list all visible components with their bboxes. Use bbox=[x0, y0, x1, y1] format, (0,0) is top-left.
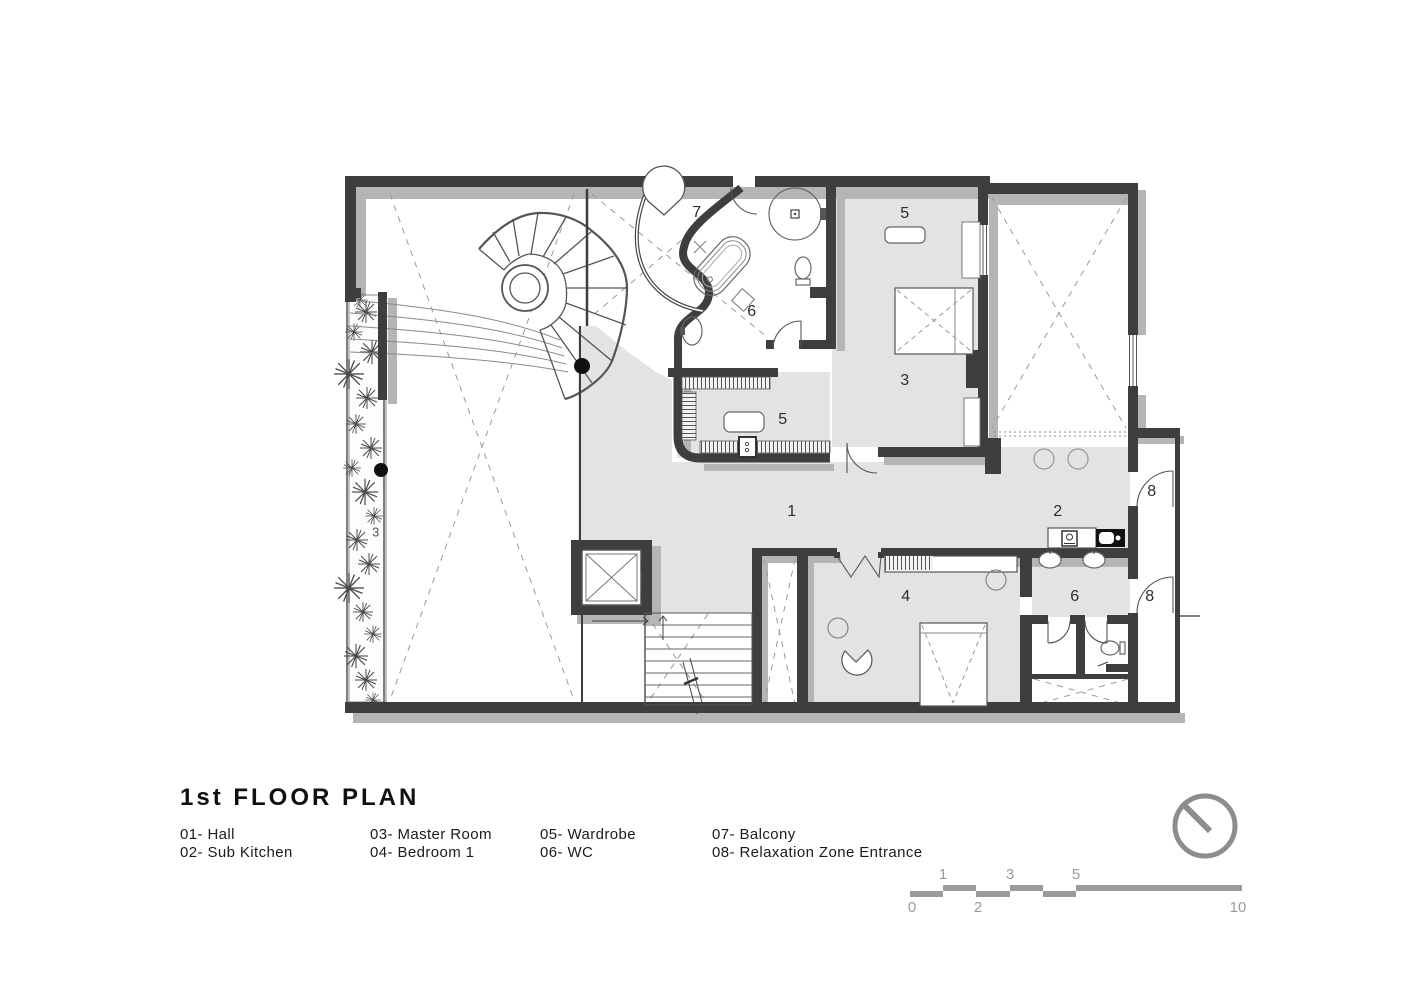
floor-plan-sheet: 7 5 6 3 5 1 2 8 4 6 8 3 1st FLOOR PLAN 0… bbox=[0, 0, 1415, 1000]
page-title: 1st FLOOR PLAN bbox=[180, 784, 419, 812]
balcony-chair-icon bbox=[643, 166, 685, 215]
room-label-entrance-b: 8 bbox=[1145, 588, 1154, 606]
basin-icon bbox=[1039, 552, 1061, 568]
scale-tick-label: 10 bbox=[1230, 899, 1247, 916]
master-cabinet-2 bbox=[964, 398, 980, 446]
room-label-master: 3 bbox=[900, 372, 909, 390]
scale-tick-label: 1 bbox=[939, 866, 947, 883]
scale-tick-label: 0 bbox=[908, 899, 916, 916]
legend-item: 01- Hall bbox=[180, 826, 235, 843]
wardrobe-island bbox=[724, 412, 764, 432]
floor-areas bbox=[578, 188, 1130, 707]
column-dot bbox=[374, 463, 388, 477]
stove-icon bbox=[1062, 531, 1077, 546]
scale-tick-label: 3 bbox=[1006, 866, 1014, 883]
room-label-wc-bottom: 6 bbox=[1070, 588, 1079, 606]
room-label-hall: 1 bbox=[787, 503, 796, 521]
spiral-stair bbox=[479, 213, 627, 399]
master-wardrobe-island bbox=[885, 227, 925, 243]
dotted-opening-lines bbox=[994, 432, 1126, 436]
toilet-top-icon bbox=[795, 257, 811, 285]
bedroom-bed bbox=[920, 623, 987, 706]
straight-stair bbox=[592, 613, 752, 714]
room-label-kitchen: 2 bbox=[1053, 503, 1062, 521]
north-indicator-icon bbox=[1175, 796, 1235, 856]
legend-item: 02- Sub Kitchen bbox=[180, 844, 293, 861]
scale-tick-label: 2 bbox=[974, 899, 982, 916]
bathtub-icon bbox=[687, 230, 756, 302]
room-label-wardrobe-top: 5 bbox=[900, 205, 909, 223]
legend-item: 06- WC bbox=[540, 844, 593, 861]
column-dot bbox=[574, 358, 590, 374]
legend-item: 07- Balcony bbox=[712, 826, 796, 843]
scale-tick-label: 5 bbox=[1072, 866, 1080, 883]
legend-item: 05- Wardrobe bbox=[540, 826, 636, 843]
windows bbox=[980, 225, 1139, 386]
sink-icon bbox=[1096, 529, 1125, 547]
room-label-wardrobe: 5 bbox=[778, 411, 787, 429]
master-cabinet bbox=[962, 222, 980, 278]
room-label-bedroom: 4 bbox=[901, 588, 910, 606]
basin-icon bbox=[1083, 552, 1105, 568]
legend-item: 03- Master Room bbox=[370, 826, 492, 843]
bathroom-top bbox=[680, 188, 826, 345]
room-label-entrance-a: 8 bbox=[1147, 483, 1156, 501]
room-label-planter: 3 bbox=[372, 525, 380, 540]
room-label-wc-top: 6 bbox=[747, 303, 756, 321]
room-label-balcony: 7 bbox=[692, 204, 701, 222]
legend-item: 04- Bedroom 1 bbox=[370, 844, 474, 861]
legend-item: 08- Relaxation Zone Entrance bbox=[712, 844, 923, 861]
master-bed bbox=[895, 288, 973, 354]
elevator bbox=[571, 540, 652, 615]
